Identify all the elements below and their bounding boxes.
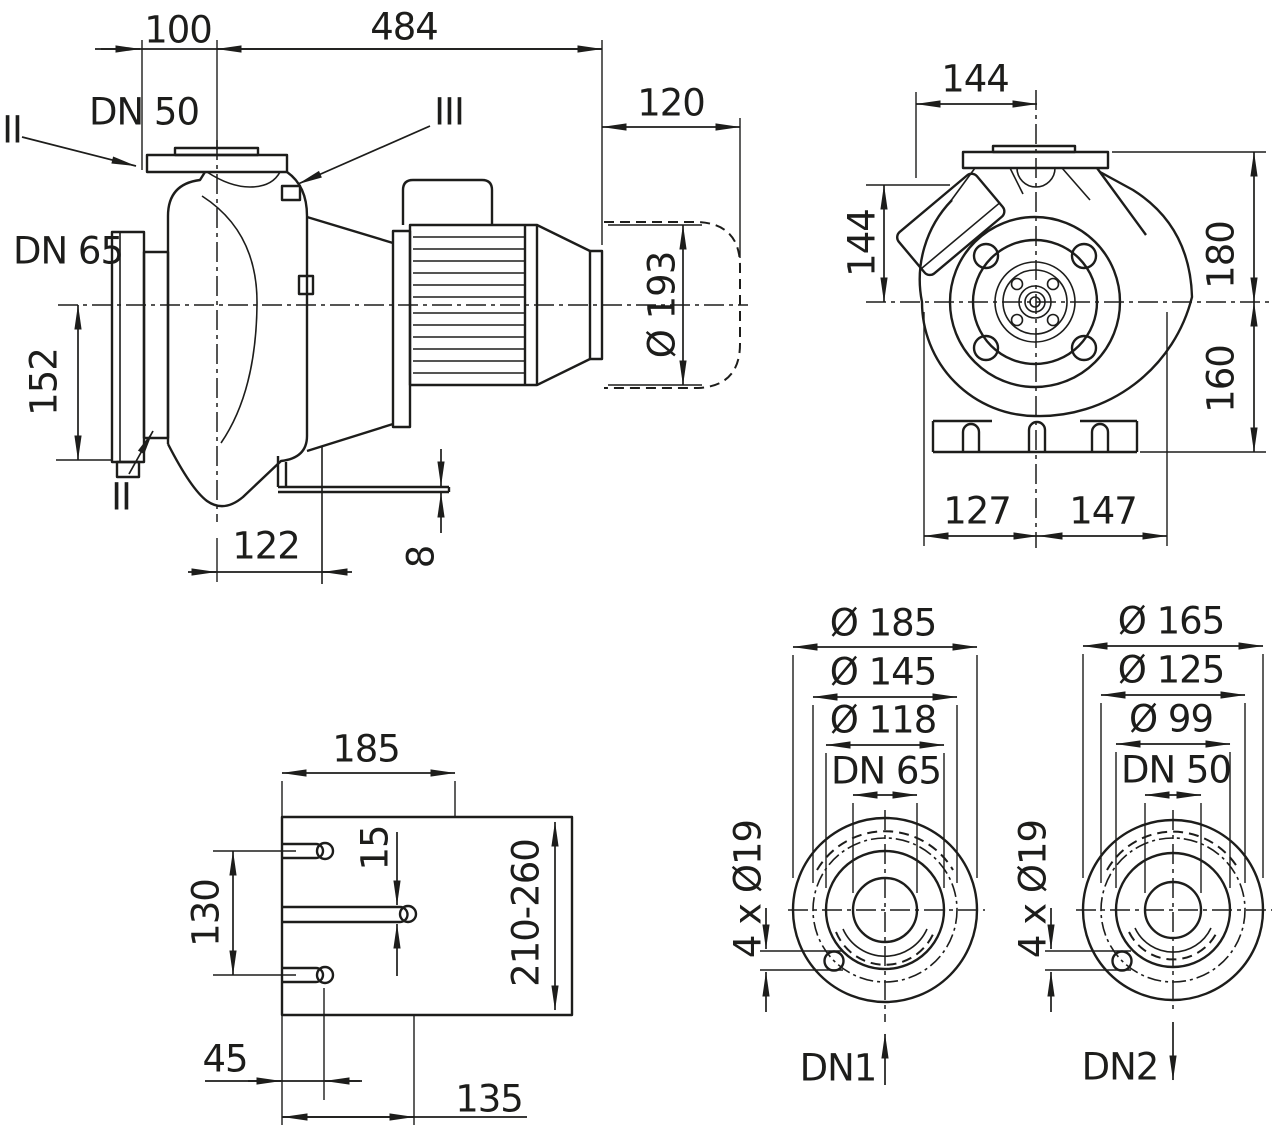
front-view: 144 144 180 160 127 147 (841, 58, 1273, 549)
dim-label-dn50: DN 50 (1121, 749, 1231, 792)
dim-label-100: 100 (144, 9, 212, 52)
side-view: 100 484 120 DN 50 DN 65 152 Ø 193 122 8 … (2, 6, 748, 585)
dim-label-bolt-holes-dn1: 4 x Ø19 (727, 820, 770, 958)
motor-flange-ring (393, 231, 410, 427)
base-plate-view: 185 130 15 210-260 45 135 (185, 728, 573, 1125)
dim-label-122: 122 (232, 525, 300, 568)
flange-view-dn1: Ø 185 Ø 145 Ø 118 DN 65 4 x Ø19 DN1 (727, 602, 986, 1090)
dim-label-484: 484 (370, 6, 438, 49)
terminal-box (403, 180, 492, 225)
adapter-bottom (307, 424, 393, 451)
front-view-dimensions (866, 92, 1266, 546)
support-foot (278, 456, 449, 492)
dim-label-dia-193: Ø 193 (641, 252, 684, 359)
side-view-geometry (112, 148, 740, 584)
dim-label-127: 127 (943, 490, 1011, 533)
dim-label-130: 130 (185, 879, 228, 947)
dim-label-8: 8 (400, 546, 443, 569)
dim-label-120: 120 (637, 82, 705, 125)
label-dn50: DN 50 (89, 91, 199, 134)
dim-label-dia-165: Ø 165 (1118, 600, 1225, 643)
port-label-dn2: DN2 (1082, 1046, 1159, 1089)
dim-label-210-260: 210-260 (505, 839, 548, 987)
dim-label-144-top: 144 (941, 58, 1009, 101)
dim-label-dia-99: Ø 99 (1129, 698, 1213, 741)
port-label-dn1: DN1 (800, 1047, 877, 1090)
dim-label-135: 135 (455, 1078, 523, 1121)
fan-cover-taper-bottom (537, 359, 590, 385)
dim-label-dia-185: Ø 185 (830, 602, 937, 645)
dim-label-dn65: DN 65 (831, 750, 941, 793)
dim-label-180: 180 (1200, 221, 1243, 289)
dim-label-15: 15 (354, 825, 397, 870)
vent-plug (282, 186, 300, 200)
volute-inner-contour (202, 196, 257, 443)
dim-label-dia-118: Ø 118 (830, 699, 937, 742)
dim-label-dia-145: Ø 145 (830, 651, 937, 694)
front-view-geometry (894, 146, 1192, 452)
dim-label-147: 147 (1069, 490, 1137, 533)
dim-label-45: 45 (202, 1038, 247, 1081)
dim-label-185: 185 (332, 728, 400, 771)
adapter-top (307, 217, 393, 243)
marker-label-ii-bottom: II (111, 476, 131, 519)
flange-view-dn2: Ø 165 Ø 125 Ø 99 DN 50 4 x Ø19 DN2 (1012, 600, 1273, 1089)
marker-label-ii-top: II (2, 109, 22, 152)
dim-label-160: 160 (1200, 345, 1243, 413)
dim-label-bolt-holes-dn2: 4 x Ø19 (1012, 820, 1055, 958)
fan-cover-taper-top (537, 225, 590, 251)
pump-feet (933, 421, 1137, 452)
suction-hub (144, 252, 168, 438)
bolt-slot-middle (282, 906, 416, 922)
terminal-box-front (894, 171, 1007, 278)
dim-label-152: 152 (23, 348, 66, 416)
label-dn65: DN 65 (13, 230, 123, 273)
volute-outline-front (920, 172, 1192, 416)
drawing-svg: 100 484 120 DN 50 DN 65 152 Ø 193 122 8 … (0, 0, 1280, 1125)
dim-label-144-left: 144 (841, 209, 884, 277)
marker-label-iii: III (434, 91, 464, 134)
dim-label-dia-125: Ø 125 (1118, 649, 1225, 692)
pump-dimensional-drawing: 100 484 120 DN 50 DN 65 152 Ø 193 122 8 … (0, 0, 1280, 1125)
